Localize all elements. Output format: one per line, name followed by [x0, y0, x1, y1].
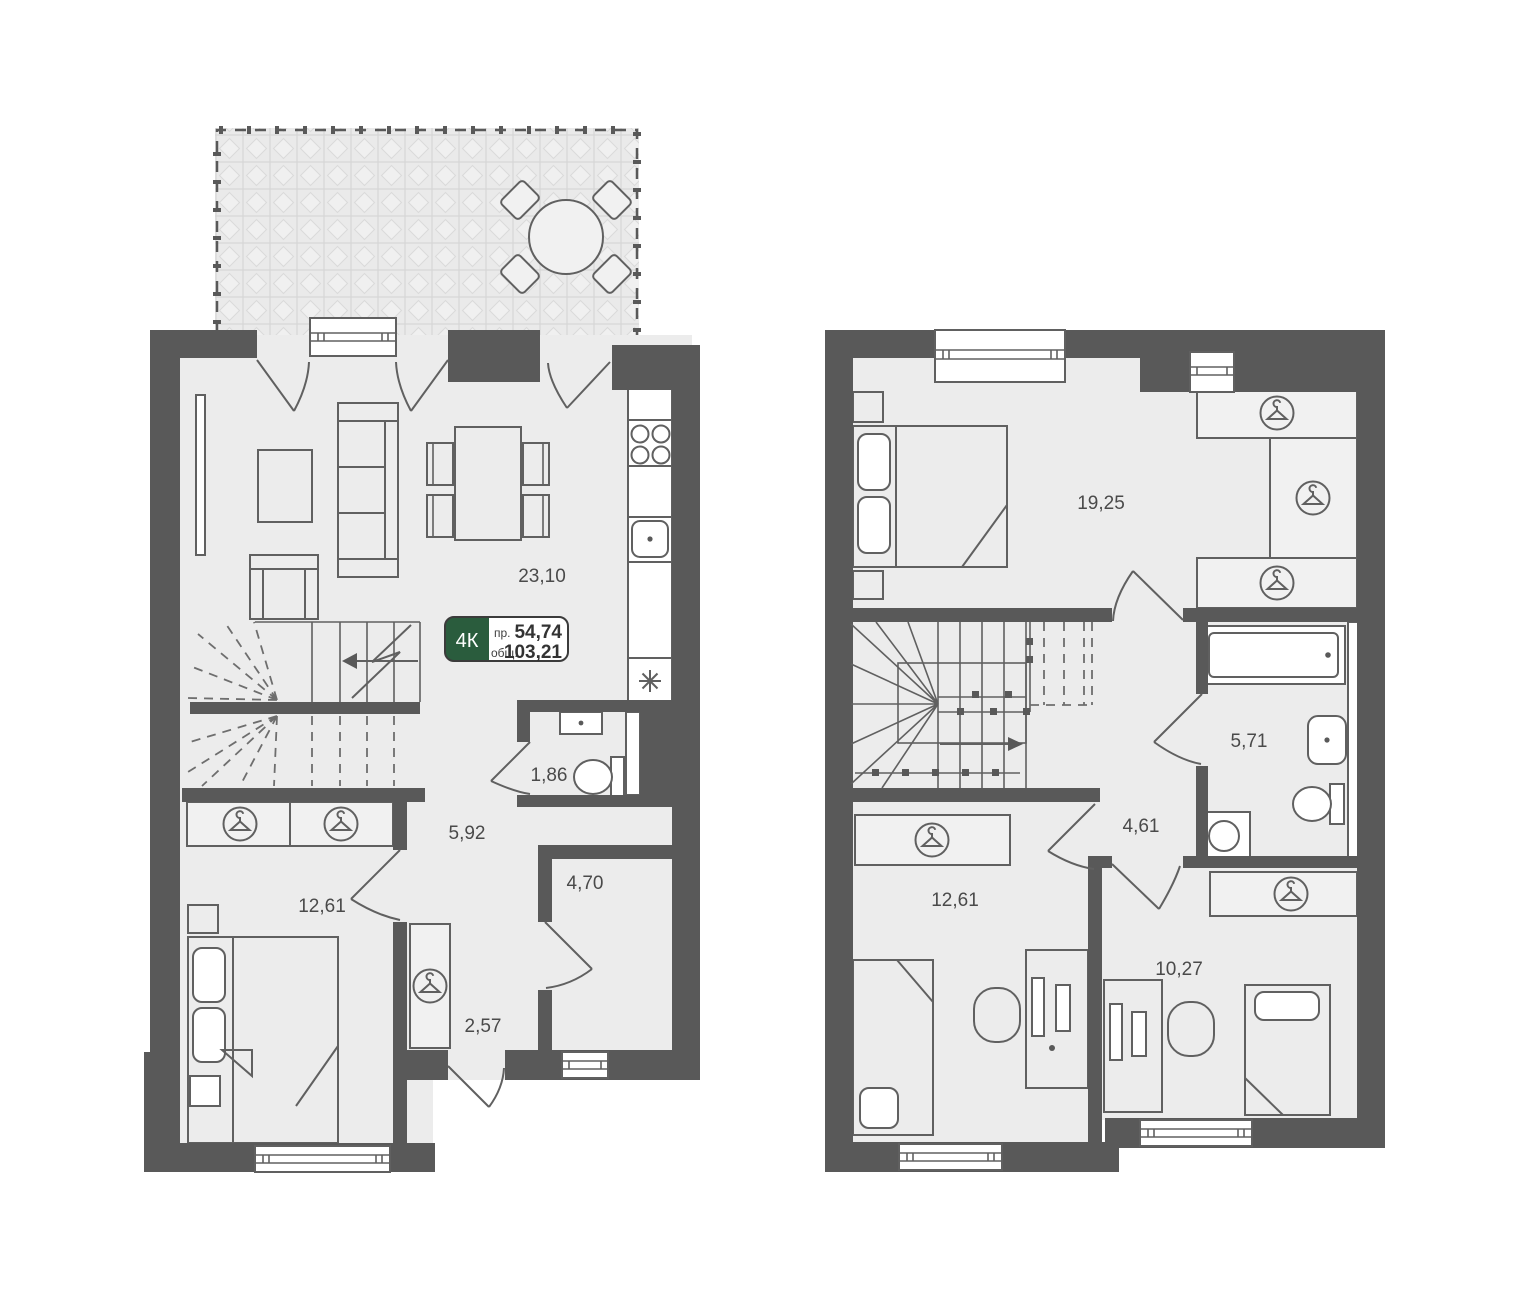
- room-label-wc: 1,86: [531, 765, 568, 786]
- room-label-entry: 2,57: [465, 1016, 502, 1037]
- room-label-hall: 5,92: [449, 823, 486, 844]
- room-label-bathroom: 5,71: [1231, 731, 1268, 752]
- entry-closet: [410, 924, 450, 1048]
- window: [255, 1146, 390, 1172]
- window: [562, 1052, 608, 1078]
- room-label-bedroom-right: 10,27: [1155, 959, 1203, 980]
- window: [935, 330, 1065, 382]
- duct-shaft: [626, 712, 640, 795]
- sofa: [338, 403, 398, 577]
- badge-pr-value: 54,74: [514, 622, 562, 643]
- bathtub-icon: [1202, 626, 1345, 684]
- room-label-hall2: 4,61: [1123, 816, 1160, 837]
- double-bed: [188, 905, 338, 1143]
- toilet-icon: [1293, 784, 1344, 824]
- armchair: [250, 555, 318, 619]
- terrace: [215, 128, 639, 352]
- room-label-kitchen-living: 23,10: [518, 566, 566, 587]
- tv-panel: [196, 395, 205, 555]
- window: [899, 1144, 1002, 1170]
- wardrobe-bedroom-left: [855, 815, 1010, 865]
- area-badge: 4К пр. 54,74 общ. 103,21: [445, 617, 568, 663]
- floor2-plan: 19,25 5,71 4,61 12,61 10,27: [825, 330, 1385, 1172]
- floor1-plan: 23,10 1,86 5,92 12,61 4,70 2,57 4К пр. 5…: [144, 318, 700, 1172]
- badge-pr-label: пр.: [494, 626, 511, 640]
- floor-plan-svg: 23,10 1,86 5,92 12,61 4,70 2,57 4К пр. 5…: [0, 0, 1536, 1300]
- toilet-icon: [574, 757, 624, 797]
- wardrobe-floor1: [187, 802, 393, 846]
- single-bed-left: [853, 960, 933, 1135]
- floor-plan-canvas: 23,10 1,86 5,92 12,61 4,70 2,57 4К пр. 5…: [0, 0, 1536, 1300]
- room-label-storeroom: 4,70: [567, 873, 604, 894]
- single-bed-right: [1245, 985, 1330, 1115]
- room-label-bedroom-master: 19,25: [1077, 493, 1125, 514]
- window: [310, 318, 396, 356]
- coffee-table: [258, 450, 312, 522]
- wc-basin-icon: [560, 712, 602, 734]
- window: [1140, 1120, 1252, 1146]
- dining-table: [427, 427, 549, 540]
- badge-total-value: 103,21: [504, 642, 563, 663]
- kitchen-sink-icon: [632, 521, 668, 557]
- badge-rooms: 4К: [456, 630, 479, 652]
- room-label-bedroom1: 12,61: [298, 896, 346, 917]
- room-label-bedroom-left: 12,61: [931, 890, 979, 911]
- wardrobe-bedroom-right: [1210, 872, 1357, 916]
- washbasin-icon: [1308, 716, 1346, 764]
- kitchen-counter: [628, 385, 672, 702]
- window: [1190, 352, 1234, 392]
